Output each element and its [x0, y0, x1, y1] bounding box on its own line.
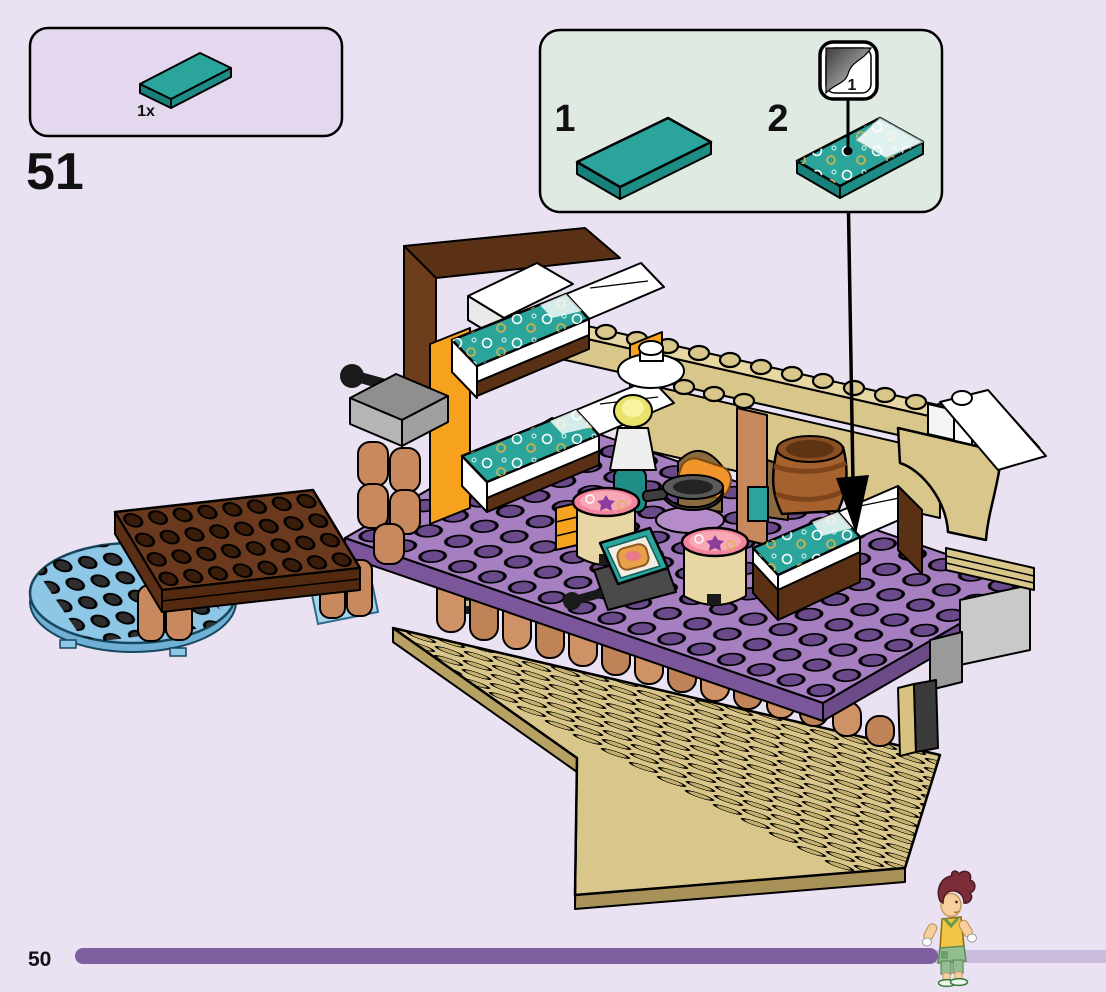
progress-bar-filled [75, 948, 938, 964]
parts-callout-box: 1x [30, 28, 342, 136]
step-number: 51 [26, 143, 84, 201]
teal-brick [748, 487, 768, 521]
faucet-knob [340, 364, 364, 388]
substep-panel: 1 2 1 [540, 30, 942, 212]
lego-instruction-page: 1x 51 1 2 1 [0, 0, 1106, 992]
substep-2-label: 2 [767, 98, 788, 140]
sticker-sheet-icon: 1 [820, 42, 877, 99]
nougat-pillar [737, 408, 767, 545]
sticker-number: 1 [848, 77, 857, 94]
substep-1-label: 1 [554, 98, 575, 140]
part-count-label: 1x [137, 103, 155, 120]
pink-lid-container-2 [682, 528, 748, 605]
page-number: 50 [28, 948, 51, 971]
sticker-pointer-dot [844, 147, 853, 156]
barrel [773, 436, 846, 514]
